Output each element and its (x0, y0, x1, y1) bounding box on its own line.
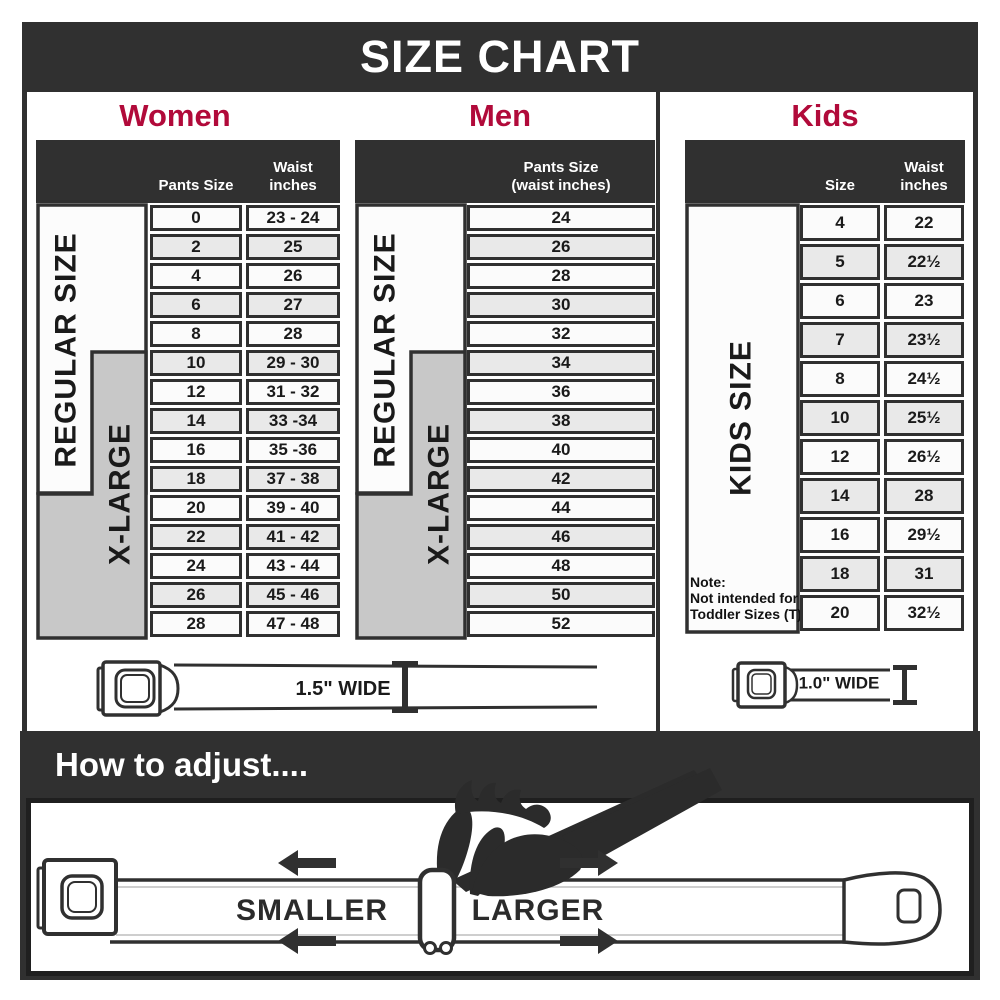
kids-size-cell: 14 (800, 478, 880, 514)
pants-size-cell: 8 (150, 321, 242, 347)
pants-size-cell: 42 (467, 466, 655, 492)
women-table-row: 24 43 - 44 (150, 553, 340, 579)
pants-size-cell: 40 (467, 437, 655, 463)
women-regular-size-label: REGULAR SIZE (50, 232, 83, 467)
kids-table-row: 8 24½ (800, 361, 964, 397)
kids-size-table: 4 22 5 22½ 6 23 7 23½ 8 24½ 10 25½ 12 26… (800, 205, 964, 634)
kids-waist-cell: 24½ (884, 361, 964, 397)
women-table-row: 22 41 - 42 (150, 524, 340, 550)
kids-waist-cell: 28 (884, 478, 964, 514)
belt-adjuster-icon (420, 870, 454, 954)
men-table-row: 44 (467, 495, 655, 521)
men-table-row: 30 (467, 292, 655, 318)
waist-inches-cell: 27 (246, 292, 340, 318)
women-table-row: 16 35 -36 (150, 437, 340, 463)
pants-size-cell: 38 (467, 408, 655, 434)
women-pants-size-header: Pants Size (150, 177, 242, 196)
larger-arrow-bottom-icon (560, 928, 618, 954)
men-table-row: 50 (467, 582, 655, 608)
kids-table-row: 12 26½ (800, 439, 964, 475)
adult-belt-illustration: 1.5" WIDE (90, 655, 610, 730)
pants-size-cell: 44 (467, 495, 655, 521)
pants-size-cell: 20 (150, 495, 242, 521)
women-table-row: 14 33 -34 (150, 408, 340, 434)
kids-waist-cell: 22½ (884, 244, 964, 280)
waist-inches-cell: 43 - 44 (246, 553, 340, 579)
kids-size-cell: 20 (800, 595, 880, 631)
waist-inches-cell: 28 (246, 321, 340, 347)
pants-size-cell: 14 (150, 408, 242, 434)
pants-size-cell: 26 (467, 234, 655, 260)
kids-section-divider (656, 92, 660, 731)
kids-belt-buckle-icon (733, 663, 797, 707)
kids-waist-cell: 26½ (884, 439, 964, 475)
pants-size-cell: 24 (150, 553, 242, 579)
pants-size-cell: 32 (467, 321, 655, 347)
kids-size-cell: 12 (800, 439, 880, 475)
women-table-row: 26 45 - 46 (150, 582, 340, 608)
women-waist-header: Waist inches (246, 159, 340, 197)
kids-table-row: 6 23 (800, 283, 964, 319)
kids-waist-cell: 22 (884, 205, 964, 241)
men-table-row: 24 (467, 205, 655, 231)
hand-icon (437, 768, 722, 896)
kids-table-row: 16 29½ (800, 517, 964, 553)
men-table-row: 28 (467, 263, 655, 289)
kids-table-row: 18 31 (800, 556, 964, 592)
men-table-header: Pants Size (waist inches) (355, 140, 655, 203)
waist-inches-cell: 29 - 30 (246, 350, 340, 376)
pants-size-cell: 36 (467, 379, 655, 405)
adult-belt-buckle-icon (98, 662, 178, 715)
men-table-row: 32 (467, 321, 655, 347)
waist-inches-cell: 37 - 38 (246, 466, 340, 492)
kids-size-cell: 18 (800, 556, 880, 592)
larger-arrow-top-icon (560, 850, 618, 876)
pants-size-cell: 50 (467, 582, 655, 608)
waist-inches-cell: 26 (246, 263, 340, 289)
kids-note: Note: Not intended for Toddler Sizes (T) (690, 574, 802, 622)
kids-waist-header: Waist inches (884, 159, 964, 197)
kids-table-row: 4 22 (800, 205, 964, 241)
kids-table-header: Size Waist inches (685, 140, 965, 203)
kids-waist-cell: 29½ (884, 517, 964, 553)
women-table-row: 4 26 (150, 263, 340, 289)
women-heading: Women (60, 98, 290, 134)
pants-size-cell: 4 (150, 263, 242, 289)
kids-table-row: 7 23½ (800, 322, 964, 358)
kids-belt-width-label: 1.0" WIDE (799, 674, 880, 693)
kids-size-cell: 7 (800, 322, 880, 358)
women-xlarge-label: X-LARGE (104, 423, 137, 565)
pants-size-cell: 10 (150, 350, 242, 376)
adult-belt-width-label: 1.5" WIDE (295, 678, 390, 700)
pants-size-cell: 48 (467, 553, 655, 579)
waist-inches-cell: 45 - 46 (246, 582, 340, 608)
smaller-arrow-bottom-icon (278, 928, 336, 954)
pants-size-cell: 52 (467, 611, 655, 637)
kids-table-row: 10 25½ (800, 400, 964, 436)
kids-size-cell: 4 (800, 205, 880, 241)
kids-size-cell: 10 (800, 400, 880, 436)
kids-waist-cell: 23½ (884, 322, 964, 358)
women-table-row: 12 31 - 32 (150, 379, 340, 405)
men-heading: Men (385, 98, 615, 134)
men-table-row: 40 (467, 437, 655, 463)
kids-size-cell: 16 (800, 517, 880, 553)
kids-waist-cell: 25½ (884, 400, 964, 436)
women-table-row: 20 39 - 40 (150, 495, 340, 521)
kids-size-cell: 5 (800, 244, 880, 280)
men-xlarge-label: X-LARGE (423, 423, 456, 565)
waist-inches-cell: 33 -34 (246, 408, 340, 434)
women-table-row: 6 27 (150, 292, 340, 318)
adjust-belt-buckle-icon (38, 860, 116, 934)
men-table-row: 26 (467, 234, 655, 260)
kids-table-row: 5 22½ (800, 244, 964, 280)
smaller-arrow-top-icon (278, 850, 336, 876)
waist-inches-cell: 23 - 24 (246, 205, 340, 231)
waist-inches-cell: 41 - 42 (246, 524, 340, 550)
men-table-row: 42 (467, 466, 655, 492)
kids-size-category-label: KIDS SIZE (685, 203, 800, 634)
kids-size-cell: 8 (800, 361, 880, 397)
kids-belt-illustration: 1.0" WIDE (715, 650, 950, 722)
men-pants-size-header: Pants Size (waist inches) (467, 159, 655, 197)
kids-size-header: Size (800, 177, 880, 196)
kids-size-cell: 6 (800, 283, 880, 319)
width-measure-ibeam-icon (893, 665, 917, 705)
pants-size-cell: 0 (150, 205, 242, 231)
pants-size-cell: 12 (150, 379, 242, 405)
kids-size-label: KIDS SIZE (725, 340, 758, 496)
women-size-category-labels: REGULAR SIZE X-LARGE (36, 203, 148, 640)
men-table-row: 46 (467, 524, 655, 550)
kids-table-row: 14 28 (800, 478, 964, 514)
waist-inches-cell: 39 - 40 (246, 495, 340, 521)
women-table-header: Pants Size Waist inches (36, 140, 340, 203)
men-size-table: 24 26 28 30 32 34 36 38 40 42 (467, 205, 655, 640)
women-size-table: 0 23 - 24 2 25 4 26 6 27 8 28 10 29 - 30… (150, 205, 340, 640)
men-table-row: 52 (467, 611, 655, 637)
waist-inches-cell: 47 - 48 (246, 611, 340, 637)
pants-size-cell: 28 (150, 611, 242, 637)
pants-size-cell: 16 (150, 437, 242, 463)
pants-size-cell: 46 (467, 524, 655, 550)
kids-heading: Kids (710, 98, 940, 134)
women-table-row: 8 28 (150, 321, 340, 347)
waist-inches-cell: 25 (246, 234, 340, 260)
men-table-row: 38 (467, 408, 655, 434)
pants-size-cell: 6 (150, 292, 242, 318)
men-table-row: 36 (467, 379, 655, 405)
smaller-label: SMALLER (236, 894, 388, 928)
kids-table-row: 20 32½ (800, 595, 964, 631)
frame-left-border (22, 92, 27, 731)
women-table-row: 18 37 - 38 (150, 466, 340, 492)
pants-size-cell: 30 (467, 292, 655, 318)
pants-size-cell: 24 (467, 205, 655, 231)
men-table-row: 48 (467, 553, 655, 579)
pants-size-cell: 22 (150, 524, 242, 550)
waist-inches-cell: 31 - 32 (246, 379, 340, 405)
adjust-belt-illustration (26, 740, 974, 980)
page-title: SIZE CHART (360, 31, 640, 83)
men-regular-size-label: REGULAR SIZE (369, 232, 402, 467)
women-table-row: 0 23 - 24 (150, 205, 340, 231)
women-table-row: 28 47 - 48 (150, 611, 340, 637)
pants-size-cell: 28 (467, 263, 655, 289)
pants-size-cell: 34 (467, 350, 655, 376)
men-table-row: 34 (467, 350, 655, 376)
kids-waist-cell: 23 (884, 283, 964, 319)
kids-waist-cell: 31 (884, 556, 964, 592)
waist-inches-cell: 35 -36 (246, 437, 340, 463)
belt-tip-icon (844, 873, 940, 944)
pants-size-cell: 2 (150, 234, 242, 260)
larger-label: LARGER (468, 894, 608, 928)
frame-right-border (973, 92, 978, 731)
kids-waist-cell: 32½ (884, 595, 964, 631)
women-table-row: 2 25 (150, 234, 340, 260)
pants-size-cell: 26 (150, 582, 242, 608)
men-size-category-labels: REGULAR SIZE X-LARGE (355, 203, 467, 640)
size-chart-title-banner: SIZE CHART (22, 22, 978, 92)
pants-size-cell: 18 (150, 466, 242, 492)
women-table-row: 10 29 - 30 (150, 350, 340, 376)
